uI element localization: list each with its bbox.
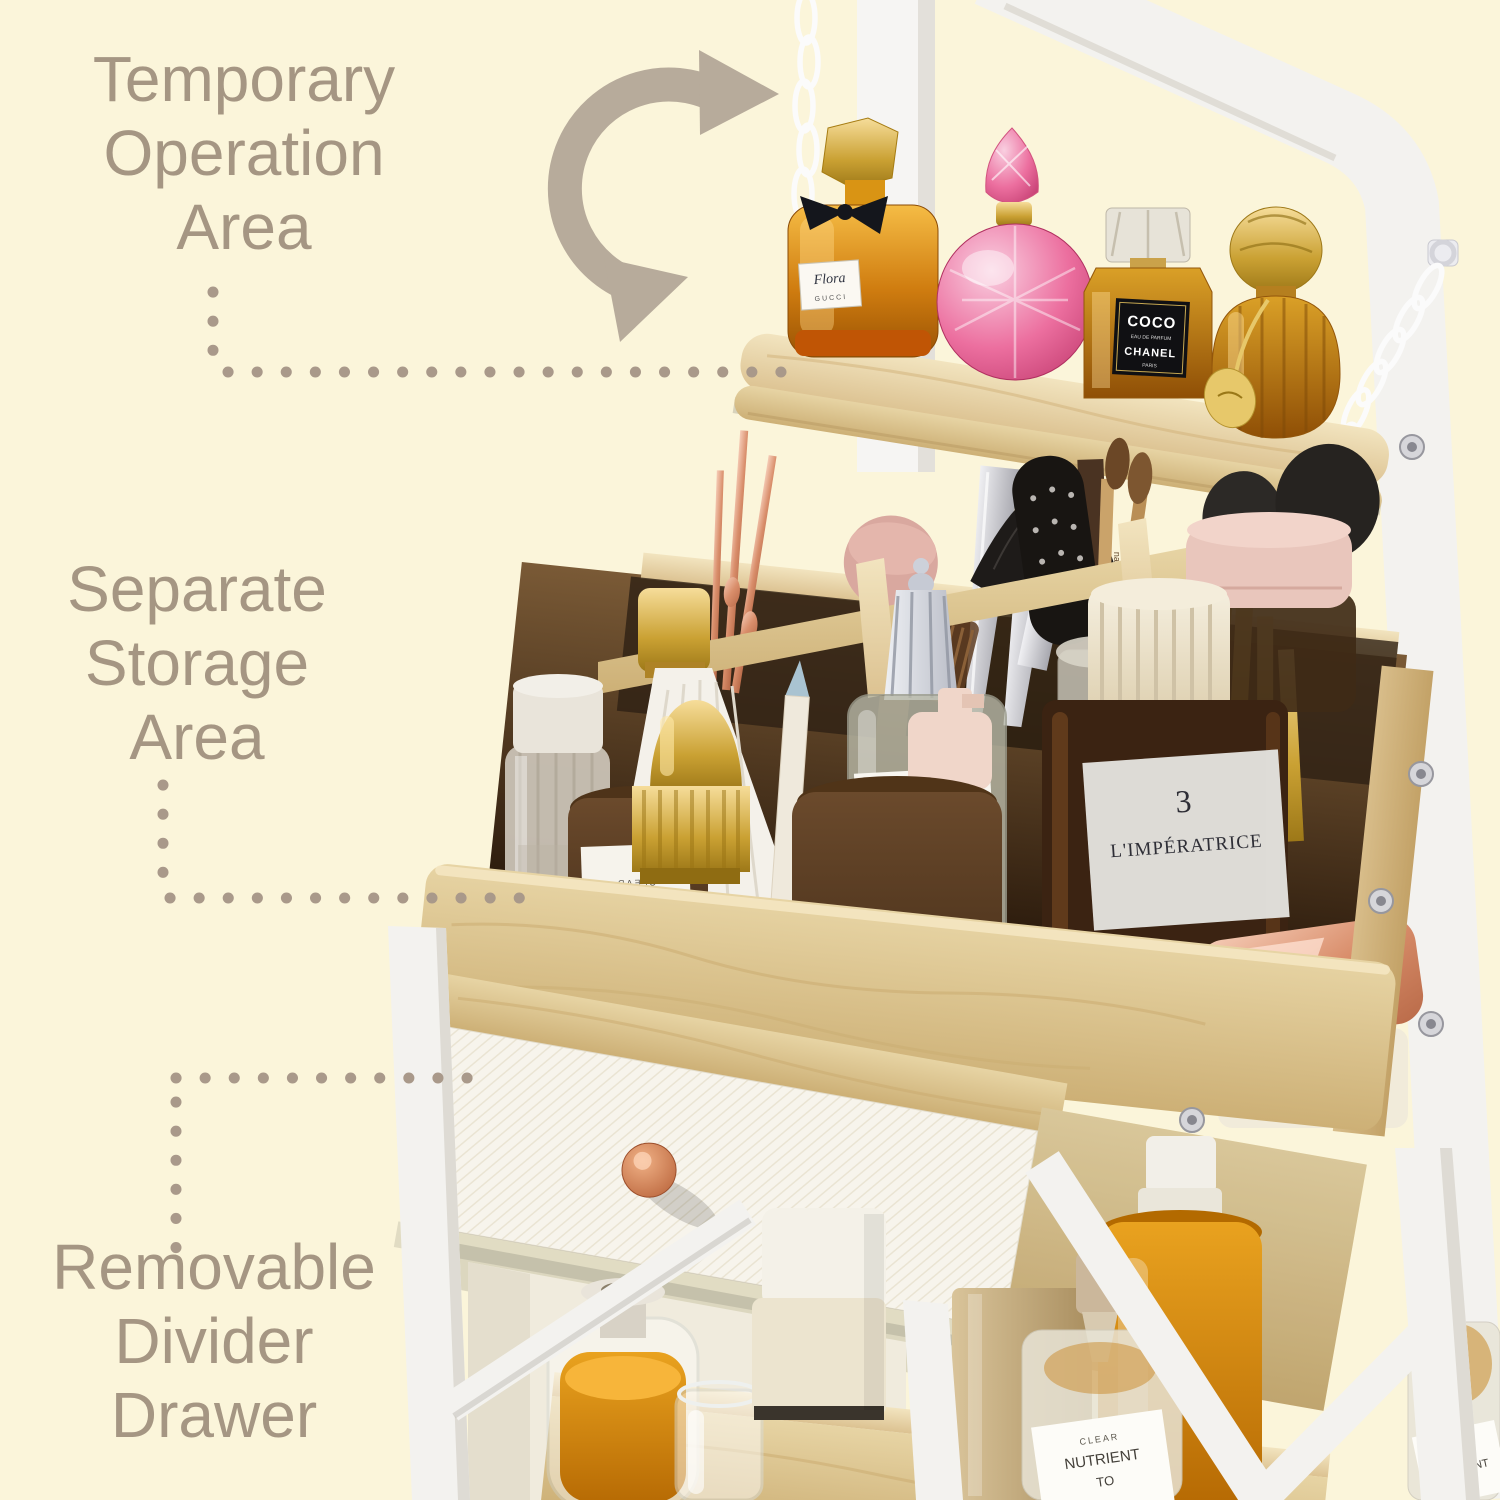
label-line: Area bbox=[8, 700, 386, 774]
coco-name-text: COCO bbox=[1127, 313, 1177, 333]
label-line: Divider bbox=[18, 1304, 410, 1378]
label-separate-storage-area: Separate Storage Area bbox=[8, 552, 386, 774]
label-line: Operation bbox=[55, 116, 433, 190]
coco-city-text: PARIS bbox=[1142, 363, 1158, 370]
imperatrice-number-text: 3 bbox=[1174, 783, 1192, 820]
label-removable-divider-drawer: Removable Divider Drawer bbox=[18, 1230, 410, 1452]
label-temporary-operation-area: Temporary Operation Area bbox=[55, 42, 433, 264]
flora-label-text: Flora bbox=[812, 271, 846, 288]
screw-icon bbox=[1400, 435, 1424, 459]
screw-icon bbox=[1180, 1108, 1204, 1132]
screw-icon bbox=[1409, 762, 1433, 786]
screw-icon bbox=[1369, 889, 1393, 913]
label-line: Drawer bbox=[18, 1378, 410, 1452]
label-line: Separate bbox=[8, 552, 386, 626]
product-image: Temporary Operation Area Separate Storag… bbox=[0, 0, 1500, 1500]
label-line: Storage bbox=[8, 626, 386, 700]
label-line: Removable bbox=[18, 1230, 410, 1304]
screw-icon bbox=[1419, 1012, 1443, 1036]
canister-cream-pump bbox=[752, 1208, 886, 1420]
bottle-small-glass bbox=[676, 1382, 762, 1500]
dropper-text: TO bbox=[1095, 1473, 1115, 1490]
label-line: Temporary bbox=[55, 42, 433, 116]
label-line: Area bbox=[55, 190, 433, 264]
